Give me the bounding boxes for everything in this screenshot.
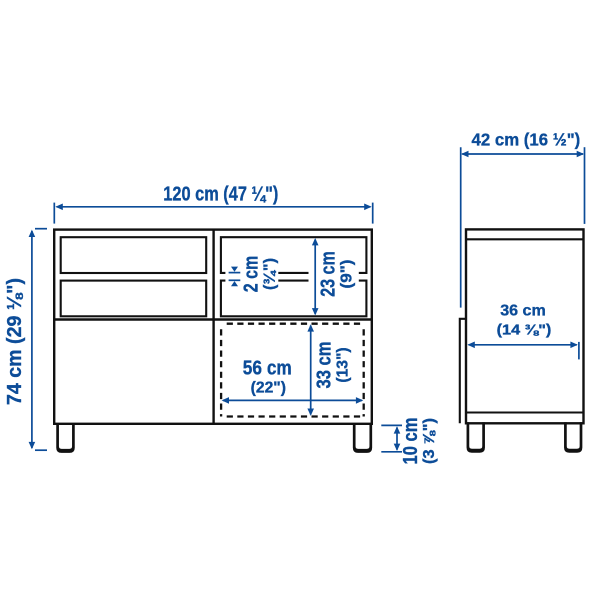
svg-text:36 cm: 36 cm xyxy=(500,303,546,320)
svg-text:(13"): (13") xyxy=(334,347,351,382)
svg-text:2 cm: 2 cm xyxy=(241,256,263,293)
svg-text:23 cm: 23 cm xyxy=(318,251,340,297)
svg-text:10 cm: 10 cm xyxy=(400,418,422,465)
svg-text:(¾"): (¾") xyxy=(261,258,278,290)
svg-text:(3 ⅞"): (3 ⅞") xyxy=(421,418,438,464)
svg-text:120 cm (47 ¼"): 120 cm (47 ¼") xyxy=(163,184,278,206)
svg-text:(22"): (22") xyxy=(251,379,286,396)
svg-text:74 cm (29 ⅛"): 74 cm (29 ⅛") xyxy=(4,278,26,405)
svg-text:42 cm (16 ½"): 42 cm (16 ½") xyxy=(472,130,581,150)
svg-text:(14 ⅜"): (14 ⅜") xyxy=(497,322,552,338)
svg-text:56 cm: 56 cm xyxy=(243,357,292,379)
svg-text:(9"): (9") xyxy=(338,260,355,289)
svg-text:33 cm: 33 cm xyxy=(314,342,336,389)
